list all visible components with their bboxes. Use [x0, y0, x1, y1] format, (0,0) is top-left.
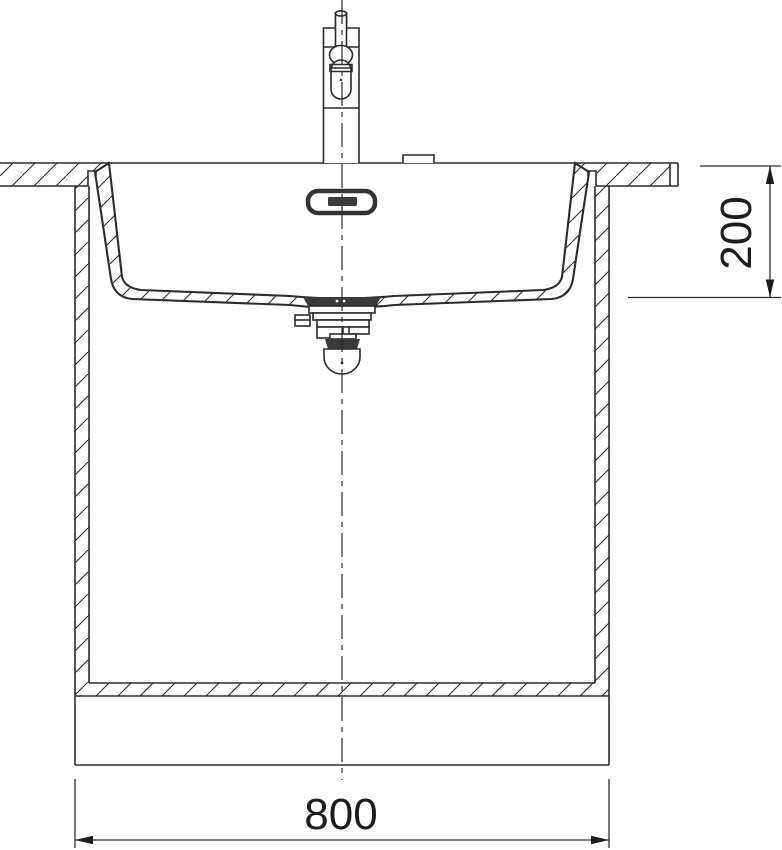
technical-drawing-page: 800 200 [0, 0, 782, 850]
cabinet-right-wall [595, 186, 609, 696]
tap-hole-cover [403, 155, 434, 163]
width-dimension: 800 [75, 779, 609, 848]
cabinet-left-wall [75, 186, 89, 696]
drain-assembly [295, 297, 381, 374]
depth-dimension-label: 200 [712, 196, 761, 269]
drain-body [317, 320, 369, 327]
sink-section-drawing: 800 200 [0, 0, 782, 850]
countertop-left-slab [0, 163, 109, 186]
width-dimension-label: 800 [304, 790, 377, 839]
faucet [324, 11, 360, 163]
